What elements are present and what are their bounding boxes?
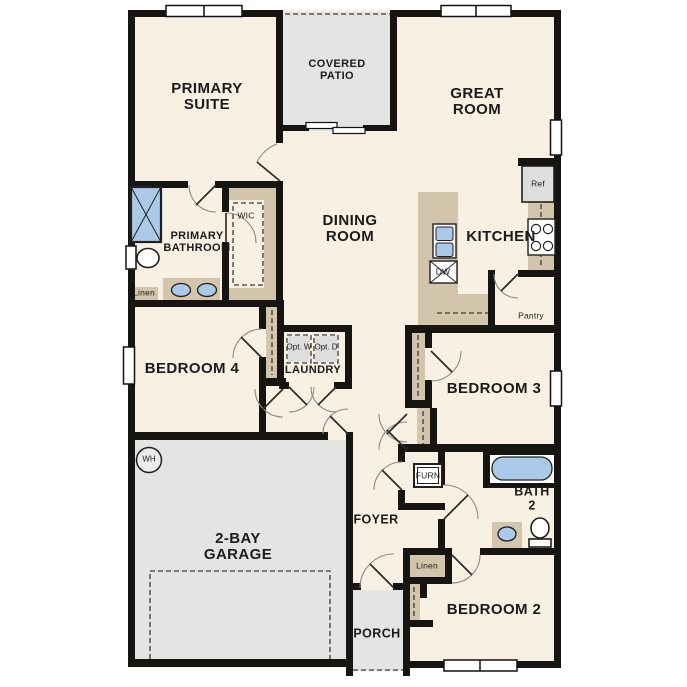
label-wic: WIC: [237, 211, 254, 220]
label-kitchen: KITCHEN: [466, 229, 535, 245]
floorplan-canvas: PRIMARY SUITE COVERED PATIO GREAT ROOM D…: [0, 0, 687, 687]
label-furnace: FURN: [416, 471, 440, 480]
label-bedroom2: BEDROOM 2: [447, 602, 541, 618]
label-garage: 2-BAY GARAGE: [189, 531, 287, 563]
window-great-room-right: [551, 120, 562, 155]
label-bedroom4: BEDROOM 4: [145, 361, 239, 377]
label-covered-patio: COVERED PATIO: [300, 59, 374, 83]
label-linen-hall: Linen: [416, 561, 438, 570]
label-porch: PORCH: [353, 627, 400, 641]
label-primary-bathroom: PRIMARY BATHROOM: [157, 231, 237, 255]
label-opt-dryer: Opt. D: [313, 344, 339, 353]
label-linen-bath: Linen: [133, 288, 155, 297]
window-bedroom4: [124, 347, 135, 384]
label-bath2: BATH 2: [511, 486, 553, 513]
label-opt-washer: Opt. W: [286, 344, 312, 353]
bathtub-icon: [483, 449, 561, 488]
label-dining-room: DINING ROOM: [308, 213, 392, 245]
label-bedroom3: BEDROOM 3: [447, 381, 541, 397]
primary-toilet-icon: [126, 246, 159, 269]
label-foyer: FOYER: [353, 513, 398, 527]
label-primary-suite: PRIMARY SUITE: [151, 81, 263, 113]
label-dishwasher: DW: [436, 267, 451, 276]
hall-closet-east-upper: [412, 332, 425, 400]
floorplan-drawing: [0, 0, 687, 687]
label-great-room: GREAT ROOM: [435, 86, 519, 118]
bath2-sink-icon: [498, 527, 516, 541]
label-refrigerator: Ref: [531, 179, 545, 188]
label-water-heater: WH: [142, 456, 155, 465]
window-bedroom3: [551, 371, 562, 406]
label-laundry: LAUNDRY: [285, 365, 341, 377]
bath2-toilet-icon: [529, 518, 551, 547]
kitchen-sink-icon: [433, 224, 456, 258]
label-pantry: Pantry: [518, 311, 544, 320]
